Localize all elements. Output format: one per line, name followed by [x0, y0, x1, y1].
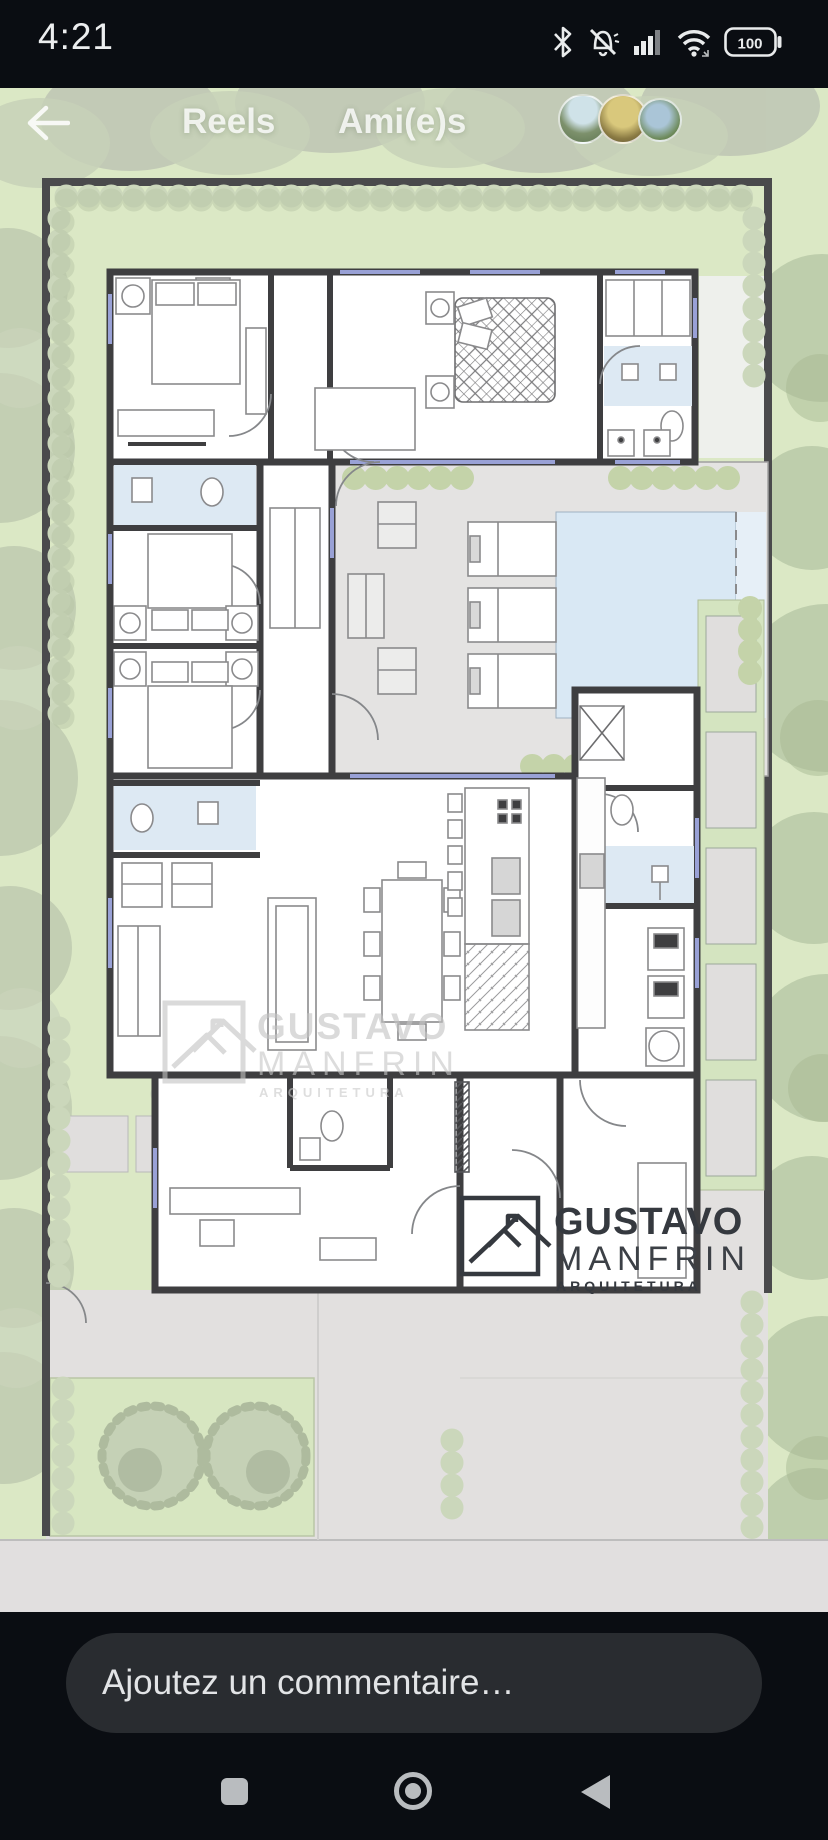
- status-time: 4:21: [38, 16, 114, 58]
- home-button[interactable]: [394, 1772, 432, 1810]
- notifications-muted-icon: [585, 24, 621, 60]
- tab-reels[interactable]: Reels: [182, 102, 275, 142]
- pool-loungers: [468, 522, 556, 708]
- lawn-tree: [100, 1404, 204, 1508]
- watermark-name-top: GUSTAVO: [257, 1006, 448, 1047]
- bottom-bar: Ajoutez un commentaire…: [0, 1612, 828, 1840]
- watermark-name-bottom: MANFRIN: [257, 1045, 461, 1083]
- reel-header: Reels Ami(e)s: [0, 94, 828, 154]
- battery-icon: 100: [724, 27, 782, 57]
- battery-percent: 100: [737, 36, 762, 53]
- floor-plan-drawing: GUSTAVO MANFRIN ARQUITETURA GUSTAVO MANF…: [0, 88, 828, 1612]
- reel-media[interactable]: GUSTAVO MANFRIN ARQUITETURA GUSTAVO MANF…: [0, 88, 828, 1612]
- watermark-subtitle: ARQUITETURA: [259, 1085, 409, 1100]
- recents-button[interactable]: [221, 1778, 248, 1805]
- wifi-icon: [675, 26, 713, 58]
- comment-input[interactable]: Ajoutez un commentaire…: [66, 1633, 762, 1733]
- nav-back-button[interactable]: [580, 1774, 610, 1810]
- tab-friends[interactable]: Ami(e)s: [338, 102, 466, 142]
- phone-screen: 4:21: [0, 0, 828, 1840]
- service-planters: [698, 600, 764, 1190]
- cell-signal-icon: [632, 26, 664, 58]
- friend-avatar[interactable]: [638, 98, 682, 142]
- status-bar: 4:21: [0, 0, 828, 88]
- logo-name-bottom: MANFRIN: [554, 1240, 751, 1278]
- logo-name-top: GUSTAVO: [554, 1201, 743, 1243]
- lawn-tree: [204, 1404, 308, 1508]
- bluetooth-icon: [552, 25, 574, 59]
- logo-subtitle: ARQUITETURA: [556, 1278, 702, 1294]
- status-icons: 100: [552, 20, 782, 64]
- friend-avatars[interactable]: [558, 94, 682, 144]
- front-lawn: [50, 1378, 314, 1536]
- back-arrow-icon[interactable]: [26, 104, 70, 142]
- android-nav-bar: [0, 1764, 828, 1834]
- comment-placeholder: Ajoutez un commentaire…: [102, 1663, 514, 1703]
